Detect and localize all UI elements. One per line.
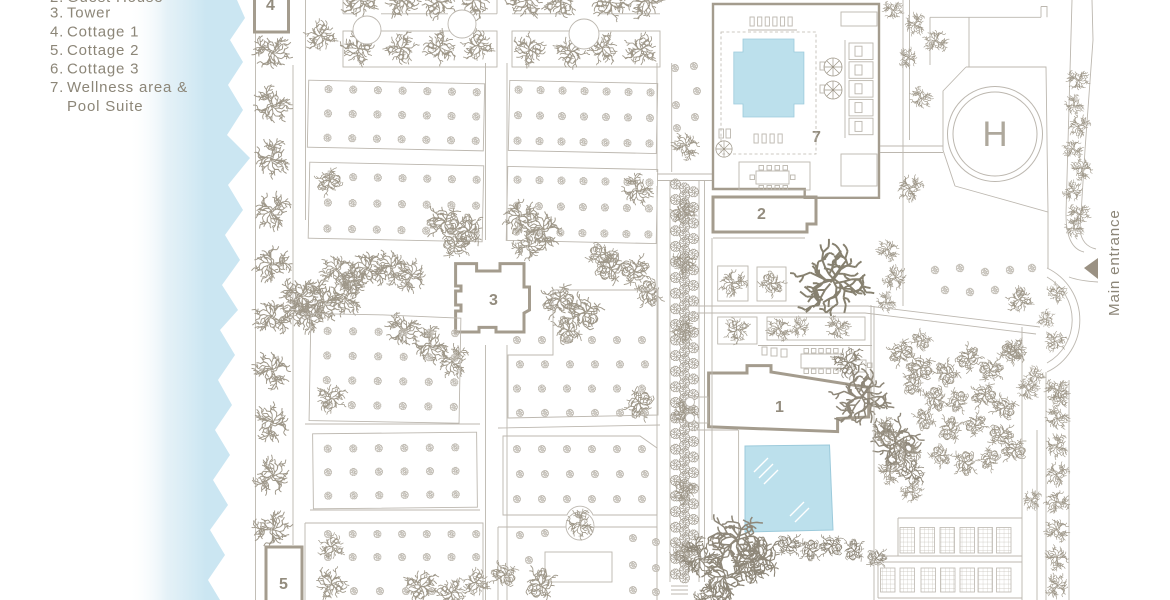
svg-text:2: 2 bbox=[757, 206, 766, 223]
svg-text:3.: 3. bbox=[50, 5, 64, 22]
svg-text:5: 5 bbox=[279, 576, 288, 593]
svg-text:3: 3 bbox=[489, 292, 498, 309]
svg-text:Pool Suite: Pool Suite bbox=[67, 98, 143, 115]
svg-text:Wellness area &: Wellness area & bbox=[67, 79, 188, 96]
svg-text:6.: 6. bbox=[50, 61, 64, 78]
svg-text:5.: 5. bbox=[50, 42, 64, 59]
svg-text:7.: 7. bbox=[50, 79, 64, 96]
svg-text:4.: 4. bbox=[50, 23, 64, 40]
svg-text:H: H bbox=[982, 115, 1007, 154]
svg-text:4: 4 bbox=[266, 0, 275, 14]
svg-text:Cottage 2: Cottage 2 bbox=[67, 42, 139, 59]
svg-text:Main entrance: Main entrance bbox=[1106, 209, 1123, 316]
svg-text:7: 7 bbox=[812, 129, 821, 146]
svg-text:Cottage 3: Cottage 3 bbox=[67, 61, 139, 78]
svg-text:Tower: Tower bbox=[67, 5, 111, 22]
svg-text:1: 1 bbox=[775, 399, 784, 416]
svg-text:Cottage 1: Cottage 1 bbox=[67, 23, 139, 40]
